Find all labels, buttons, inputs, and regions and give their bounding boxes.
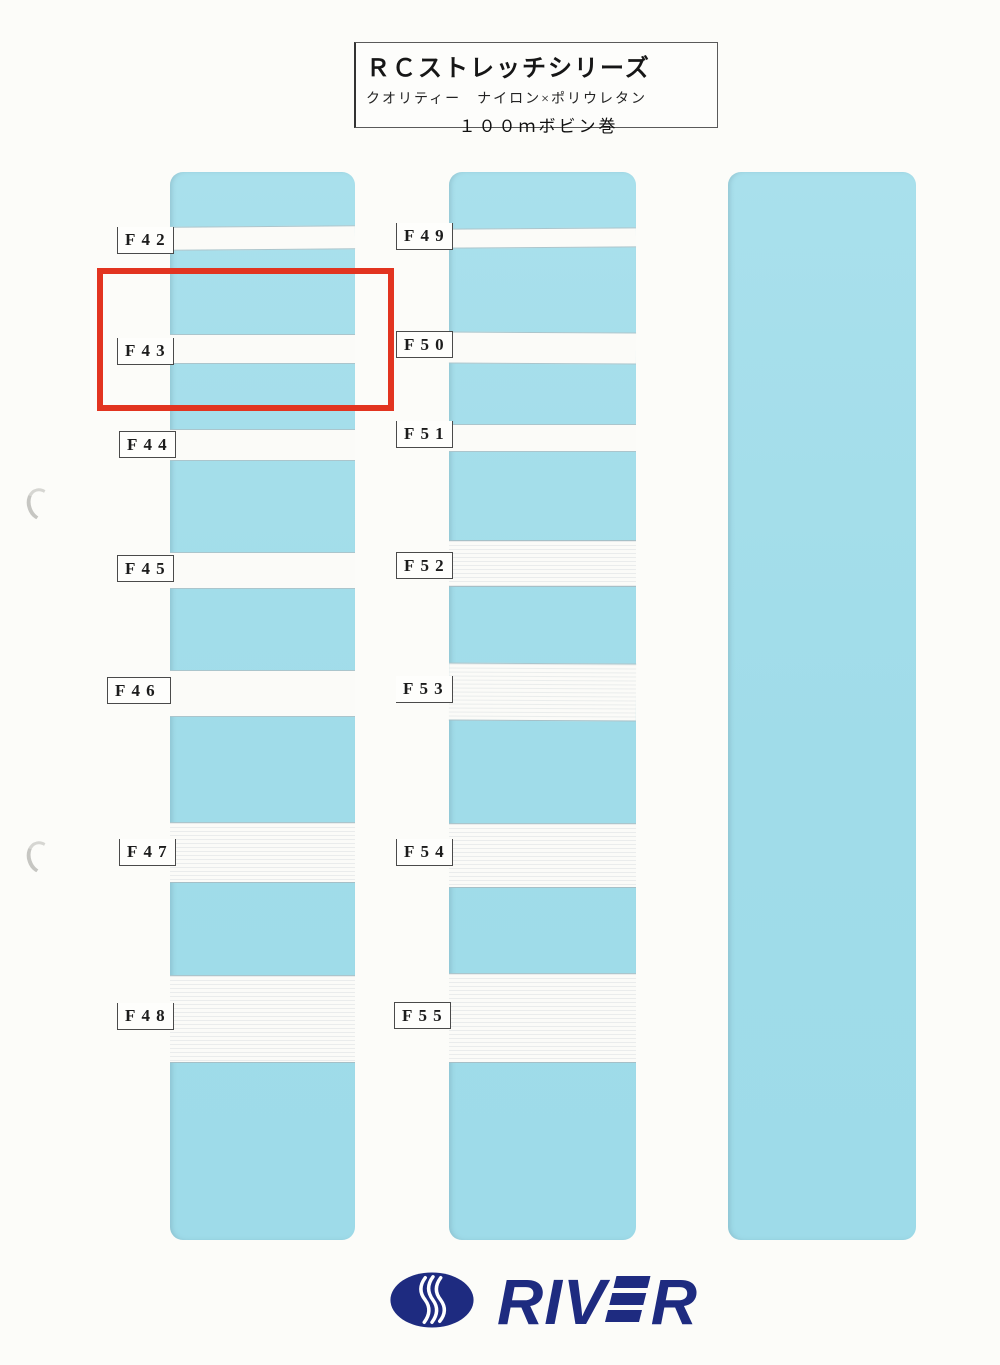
tape-sample-f55 <box>449 973 636 1063</box>
logo-text-prefix: RIV <box>497 1270 607 1334</box>
scanned-sample-card-page: { "header": { "series_title": "ＲＣストレッチシリ… <box>0 0 1000 1365</box>
logo-text-suffix: R <box>651 1270 698 1334</box>
sample-label-f54: F54 <box>396 839 453 866</box>
sample-panel-blank <box>728 172 916 1240</box>
highlight-box-f43 <box>97 268 394 411</box>
sample-label-f53: F53 <box>396 676 453 703</box>
sample-label-f44: F44 <box>119 431 176 458</box>
tape-sample-f51 <box>449 424 636 452</box>
punch-hole-top <box>23 485 59 525</box>
title-box: ＲＣストレッチシリーズ クオリティー ナイロン×ポリウレタン １００ｍボビン巻 <box>354 42 718 128</box>
tape-sample-f48 <box>170 975 355 1063</box>
quality-line: クオリティー ナイロン×ポリウレタン <box>366 88 711 108</box>
series-title: ＲＣストレッチシリーズ <box>366 48 711 83</box>
sample-label-f49: F49 <box>396 223 453 250</box>
sample-label-f51: F51 <box>396 421 453 448</box>
sample-label-f42: F42 <box>117 227 174 254</box>
brand-logo: RIV R <box>389 1270 698 1334</box>
logo-wordmark: RIV R <box>497 1270 698 1334</box>
tape-sample-f42 <box>170 225 355 251</box>
sample-label-f50: F50 <box>396 331 453 358</box>
tape-sample-f54 <box>449 823 636 888</box>
tape-sample-f46 <box>170 670 355 717</box>
sample-label-f55: F55 <box>394 1002 451 1029</box>
tape-sample-f49 <box>449 227 636 248</box>
tape-sample-f44 <box>170 429 355 461</box>
tape-sample-f45 <box>170 552 355 589</box>
tape-sample-f50 <box>449 332 636 365</box>
logo-letter-e-icon <box>605 1276 650 1322</box>
sample-label-f45: F45 <box>117 555 174 582</box>
sample-label-f52: F52 <box>396 552 453 579</box>
sample-label-f47: F47 <box>119 839 176 866</box>
logo-ellipse-icon <box>389 1271 475 1334</box>
tape-sample-f53 <box>449 663 636 722</box>
spool-line: １００ｍボビン巻 <box>366 112 711 137</box>
sample-label-f46: F46 <box>107 677 171 704</box>
punch-hole-bottom <box>23 838 59 878</box>
sample-panel-right <box>449 172 636 1240</box>
sample-label-f48: F48 <box>117 1003 174 1030</box>
tape-sample-f47 <box>170 822 355 883</box>
tape-sample-f52 <box>449 540 636 587</box>
